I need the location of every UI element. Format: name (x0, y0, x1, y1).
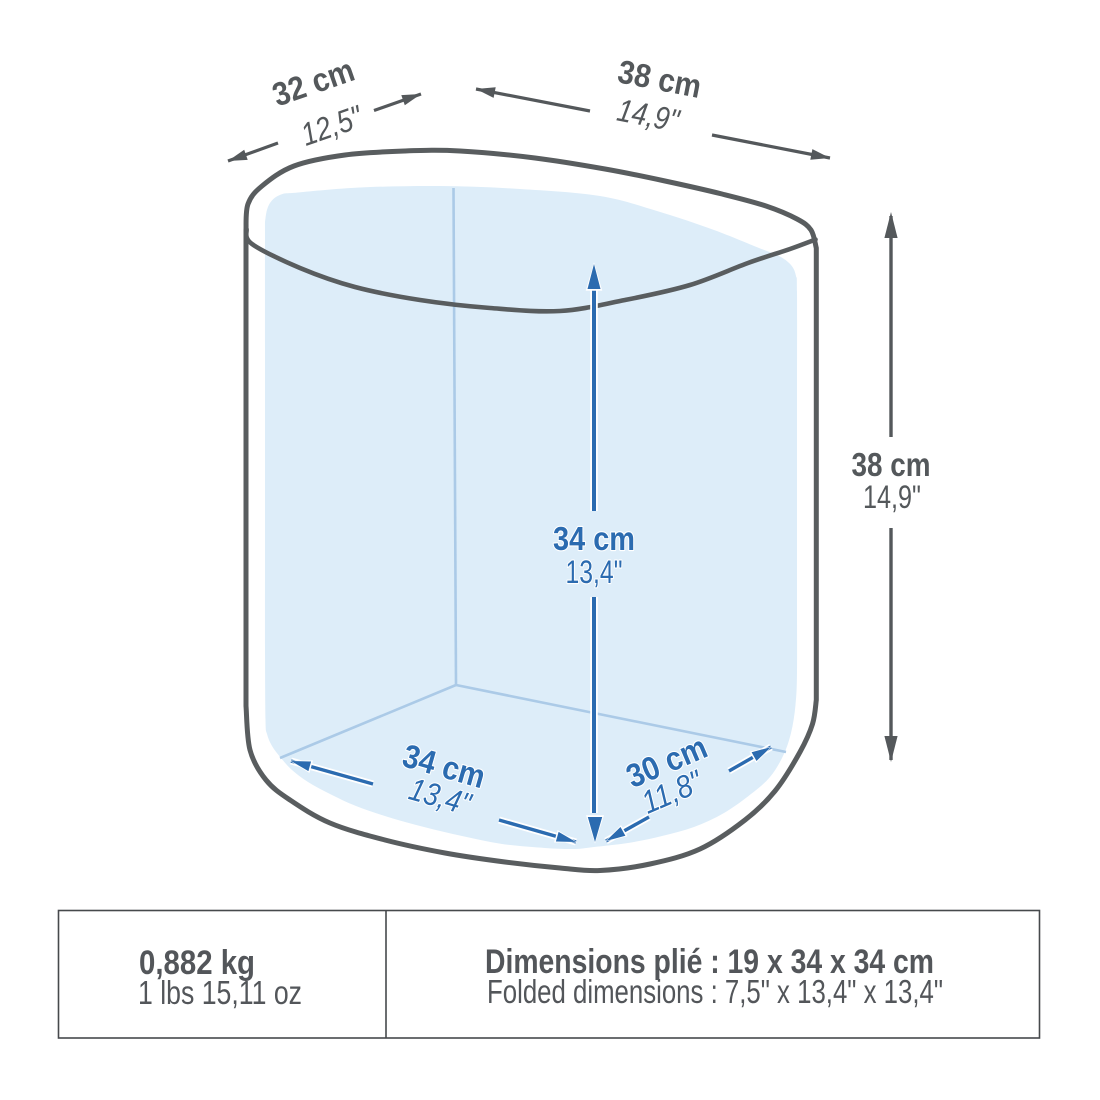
svg-text:Folded dimensions : 7,5" x 13,: Folded dimensions : 7,5" x 13,4" x 13,4" (487, 973, 943, 1010)
svg-text:1 lbs 15,11 oz: 1 lbs 15,11 oz (138, 974, 302, 1011)
svg-text:38 cm: 38 cm (852, 446, 931, 483)
svg-text:13,4": 13,4" (566, 554, 623, 590)
svg-text:14,9": 14,9" (863, 479, 921, 515)
svg-text:34 cm: 34 cm (553, 520, 635, 557)
